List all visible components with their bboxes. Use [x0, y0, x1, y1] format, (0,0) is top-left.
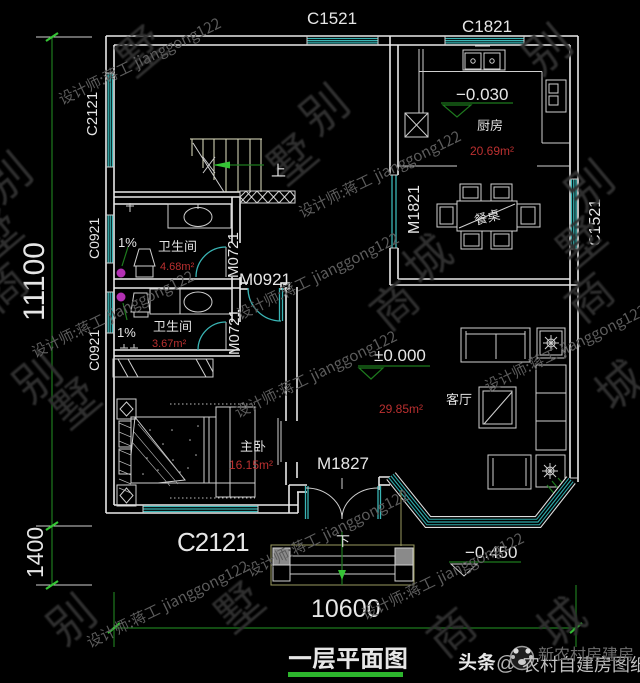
svg-text:C0921: C0921 — [86, 218, 102, 259]
svg-text:±0.000: ±0.000 — [374, 346, 426, 365]
svg-text:C1821: C1821 — [462, 17, 512, 36]
svg-text:C2121: C2121 — [84, 92, 101, 136]
svg-text:1%: 1% — [117, 325, 136, 340]
svg-text:16.15m²: 16.15m² — [229, 458, 273, 472]
svg-text:C0921: C0921 — [86, 330, 102, 371]
svg-text:29.85m²: 29.85m² — [379, 402, 423, 416]
svg-text:M1821: M1821 — [406, 185, 423, 234]
svg-text:1%: 1% — [118, 235, 137, 250]
svg-text:20.69m²: 20.69m² — [470, 144, 514, 158]
svg-text:11100: 11100 — [18, 242, 51, 321]
svg-text:4.68m²: 4.68m² — [160, 261, 195, 273]
svg-text:−0.030: −0.030 — [456, 85, 508, 104]
svg-text:M1827: M1827 — [317, 454, 369, 473]
svg-text:M0721: M0721 — [226, 309, 243, 355]
svg-text:C2121: C2121 — [177, 527, 249, 557]
svg-text:3.67m²: 3.67m² — [152, 338, 187, 350]
svg-text:1400: 1400 — [22, 527, 48, 578]
svg-text:C1521: C1521 — [307, 9, 357, 28]
svg-text:10600: 10600 — [311, 595, 381, 623]
